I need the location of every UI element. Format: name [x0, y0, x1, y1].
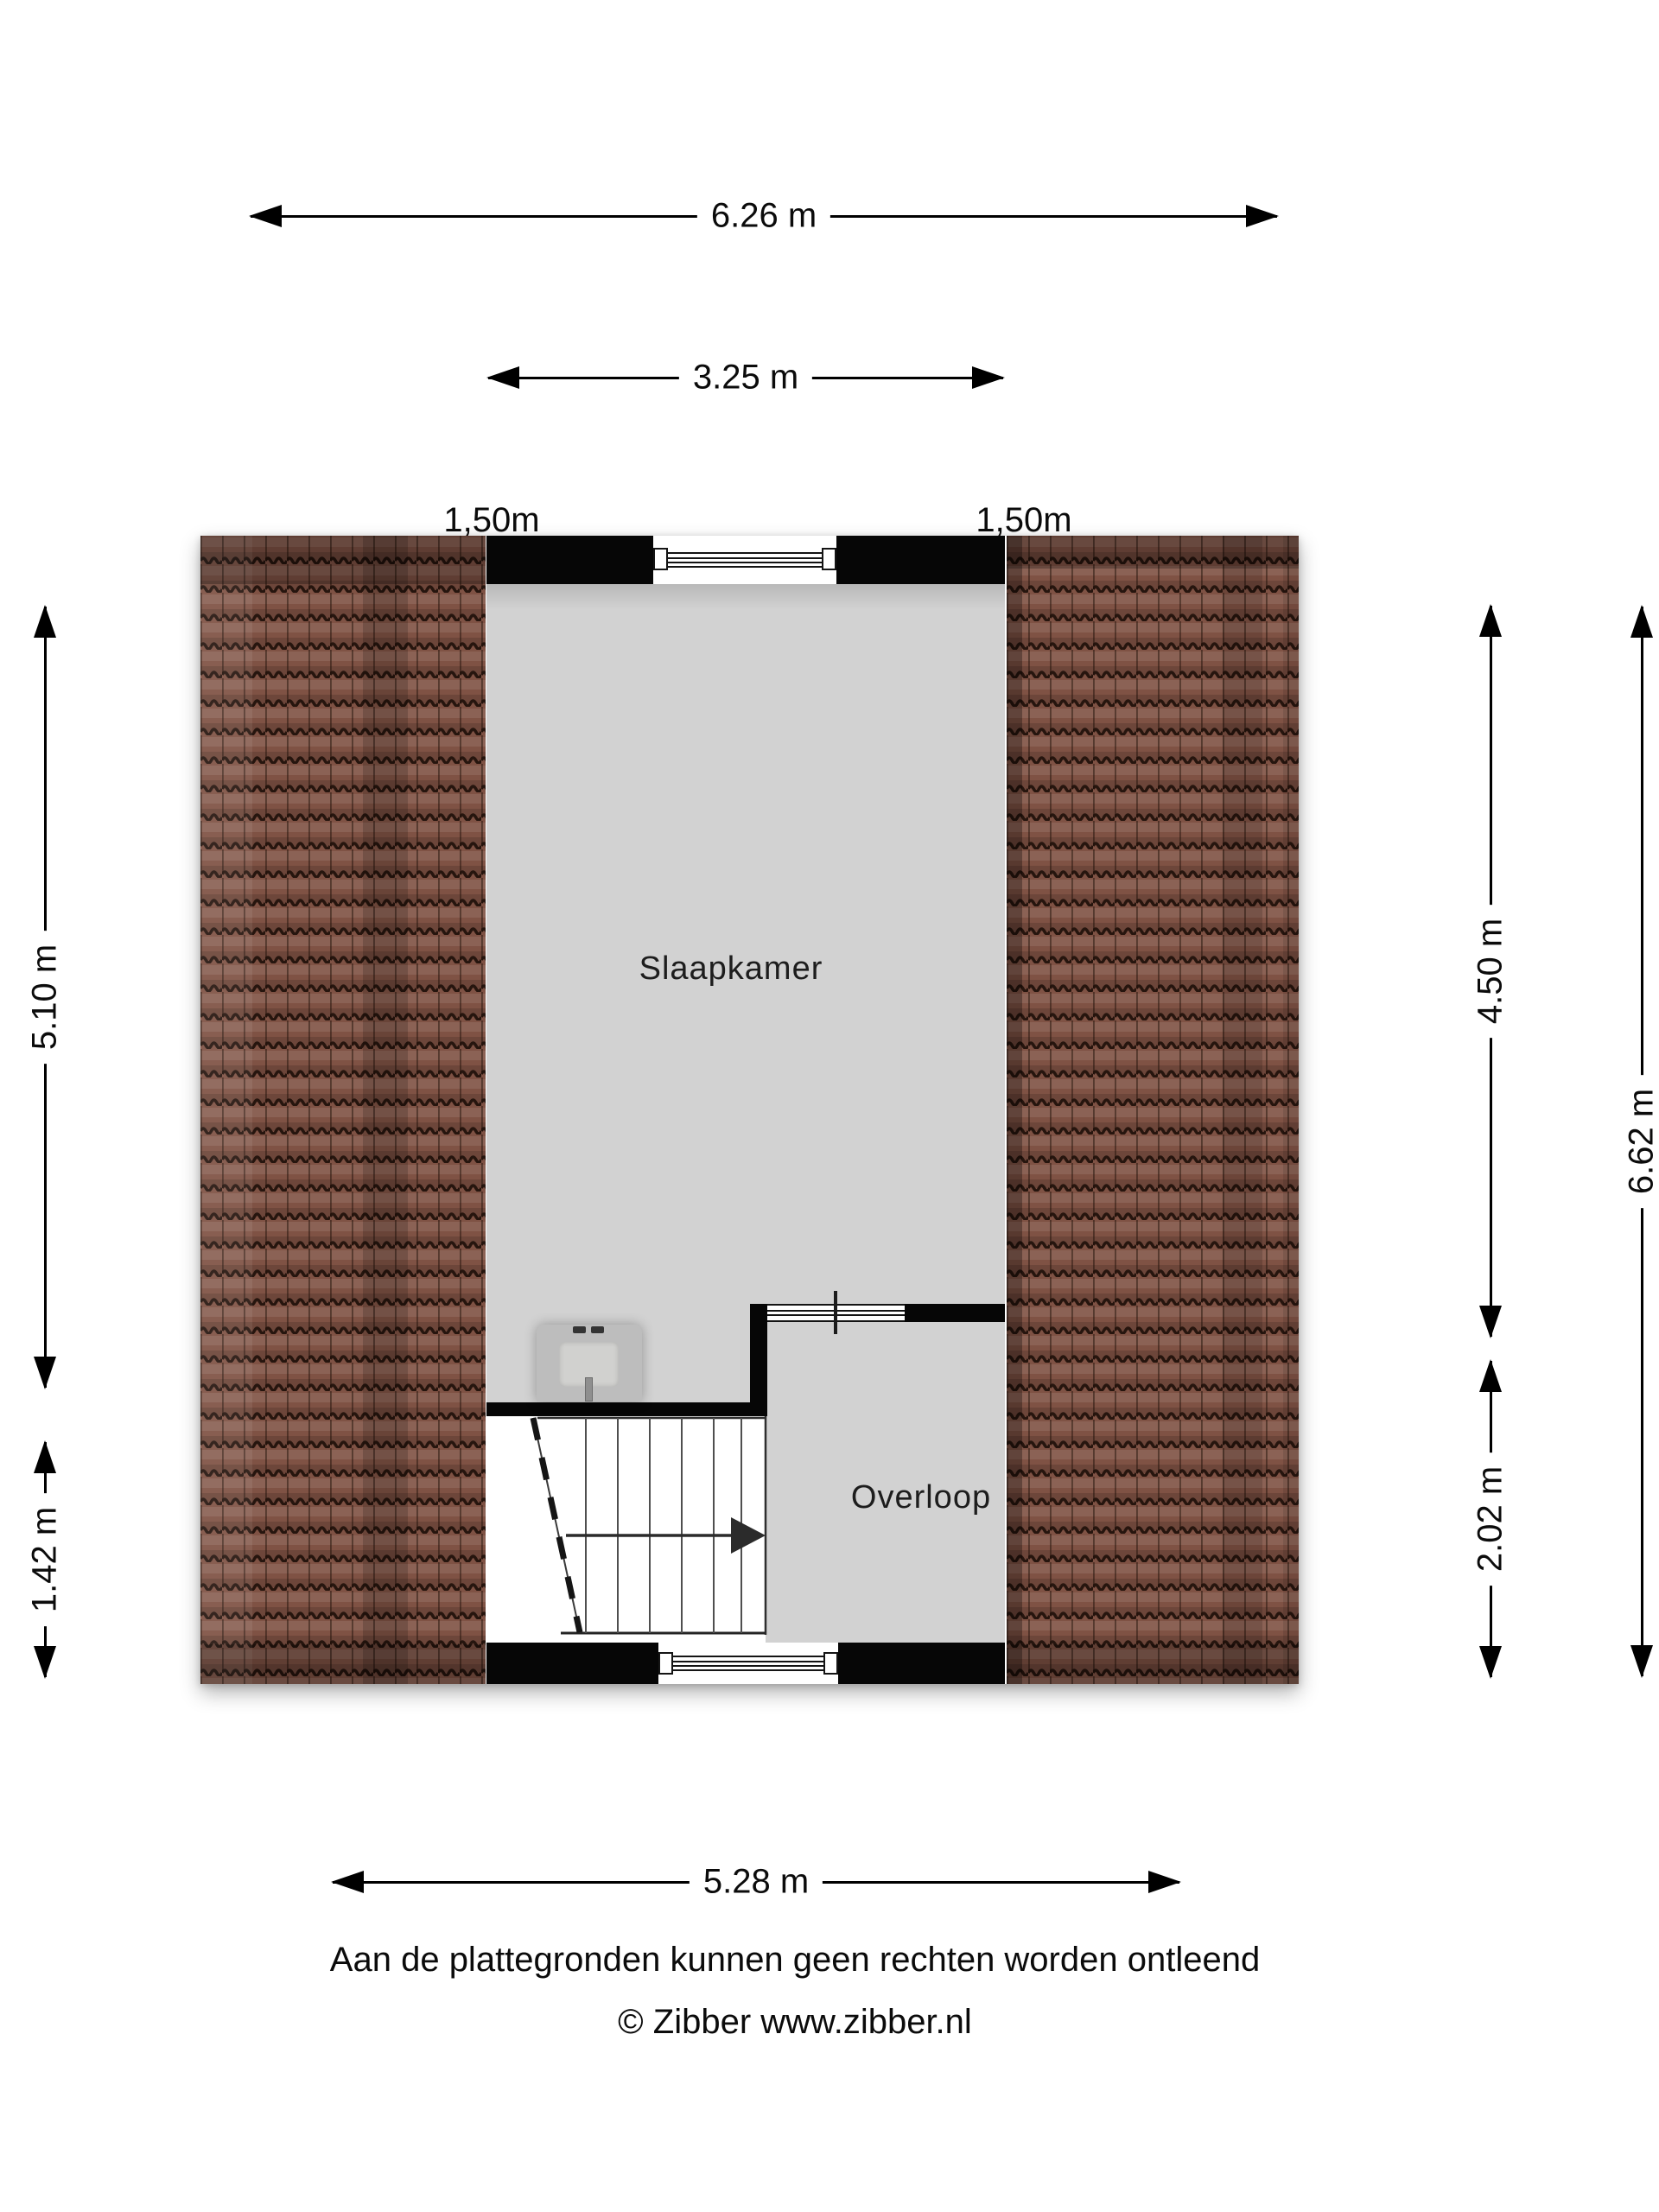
- dimension-right-upper: 4.50 m: [1471, 604, 1510, 1338]
- arrowhead-left-icon: [331, 1871, 364, 1893]
- dimension-right-lower: 2.02 m: [1471, 1359, 1510, 1679]
- dimension-label: 3.25 m: [679, 359, 812, 397]
- arrowhead-icon: [1479, 604, 1502, 637]
- footer-disclaimer: Aan de plattegronden kunnen geen rechten…: [0, 1940, 1590, 1980]
- dimension-label: 2.02 m: [1471, 1452, 1510, 1586]
- arrowhead-icon: [1630, 1645, 1653, 1678]
- dimension-top-outer: 6.26 m: [249, 197, 1279, 235]
- arrowhead-right-icon: [1148, 1871, 1181, 1893]
- room-label-bedroom: Slaapkamer: [558, 950, 904, 988]
- dimension-label: 5.28 m: [690, 1863, 823, 1902]
- arrowhead-left-icon: [249, 205, 282, 227]
- arrowhead-icon: [34, 605, 56, 638]
- dimension-label: 6.26 m: [697, 197, 830, 236]
- footer-copyright: © Zibber www.zibber.nl: [0, 2002, 1590, 2042]
- dimension-label: 1.42 m: [26, 1493, 65, 1626]
- dimension-dormer-right: 1,50m: [938, 501, 1110, 540]
- dimension-right-outer: 6.62 m: [1623, 605, 1659, 1678]
- arrowhead-icon: [34, 1357, 56, 1389]
- arrowhead-right-icon: [1246, 205, 1279, 227]
- footer: Aan de plattegronden kunnen geen rechten…: [0, 1940, 1590, 2042]
- dimension-label: 4.50 m: [1471, 905, 1510, 1038]
- arrowhead-left-icon: [486, 366, 519, 389]
- arrowhead-icon: [1630, 605, 1653, 638]
- arrowhead-icon: [1479, 1306, 1502, 1338]
- arrowhead-icon: [34, 1646, 56, 1679]
- arrowhead-icon: [1479, 1646, 1502, 1679]
- arrowhead-icon: [1479, 1359, 1502, 1392]
- dimension-label: 5.10 m: [26, 931, 65, 1064]
- dimension-bottom: 5.28 m: [331, 1863, 1181, 1901]
- arrowhead-icon: [34, 1440, 56, 1473]
- dimension-left-lower: 1.42 m: [26, 1440, 64, 1679]
- dimension-label: 6.62 m: [1623, 1075, 1659, 1208]
- dimension-dormer-left: 1,50m: [405, 501, 578, 540]
- room-label-landing: Overloop: [791, 1479, 1051, 1516]
- dimension-top-inner: 3.25 m: [486, 359, 1005, 397]
- floorplan-page: 6.26 m 3.25 m 1,50m 1,50m 5.10 m 1.42 m …: [0, 0, 1659, 2212]
- dimension-left-upper: 5.10 m: [26, 605, 64, 1389]
- arrowhead-right-icon: [972, 366, 1005, 389]
